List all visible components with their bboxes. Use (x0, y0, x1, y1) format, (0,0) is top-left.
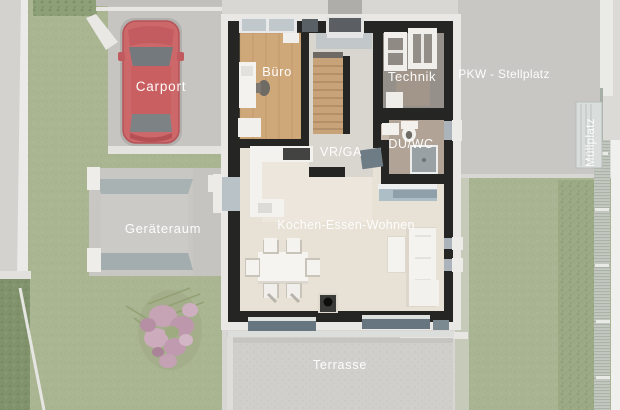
svg-text:PKW - Stellplatz: PKW - Stellplatz (458, 67, 550, 81)
svg-text:Terrasse: Terrasse (313, 358, 367, 372)
svg-text:Technik: Technik (388, 69, 436, 84)
svg-text:Carport: Carport (136, 79, 187, 94)
svg-text:Müllplatz: Müllplatz (585, 118, 597, 167)
svg-text:Kochen-Essen-Wohnen: Kochen-Essen-Wohnen (277, 218, 415, 232)
svg-text:DU/WC: DU/WC (388, 137, 433, 151)
svg-text:Büro: Büro (262, 64, 292, 79)
svg-text:Geräteraum: Geräteraum (125, 221, 201, 236)
svg-text:VR/GA: VR/GA (320, 145, 362, 159)
